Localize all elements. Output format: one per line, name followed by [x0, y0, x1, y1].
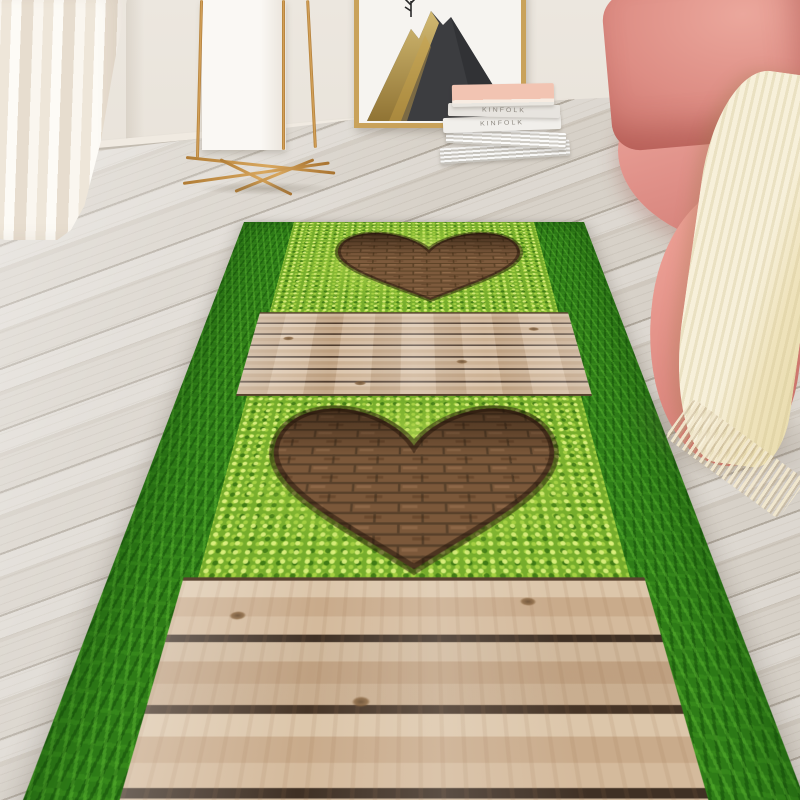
wood-knot	[351, 696, 370, 707]
rug-hedge-section-main	[198, 396, 630, 577]
bed	[595, 0, 800, 560]
book-spine-text: KINFOLK	[480, 120, 524, 128]
wood-knot	[354, 381, 367, 386]
wood-knot	[282, 336, 294, 340]
brick-heart-large	[229, 398, 599, 576]
brick-heart-small	[318, 228, 543, 304]
stand-shadow	[198, 182, 334, 195]
bedroom-scene: KINFOLK KINFOLK	[0, 0, 800, 800]
wood-knot	[456, 359, 468, 363]
stand-wire	[282, 0, 285, 150]
book-spine-text: KINFOLK	[482, 107, 526, 114]
rug-wood-band-narrow	[236, 312, 592, 396]
book-stack: KINFOLK KINFOLK	[440, 80, 572, 166]
rug-wood-band-wide	[0, 577, 800, 800]
wood-knot	[228, 611, 247, 620]
wood-knot	[528, 327, 540, 331]
rug-hedge-section-top	[270, 222, 559, 312]
stand-pedestal	[202, 0, 286, 150]
book-top-pink	[452, 83, 554, 107]
wood-knot	[519, 597, 537, 606]
